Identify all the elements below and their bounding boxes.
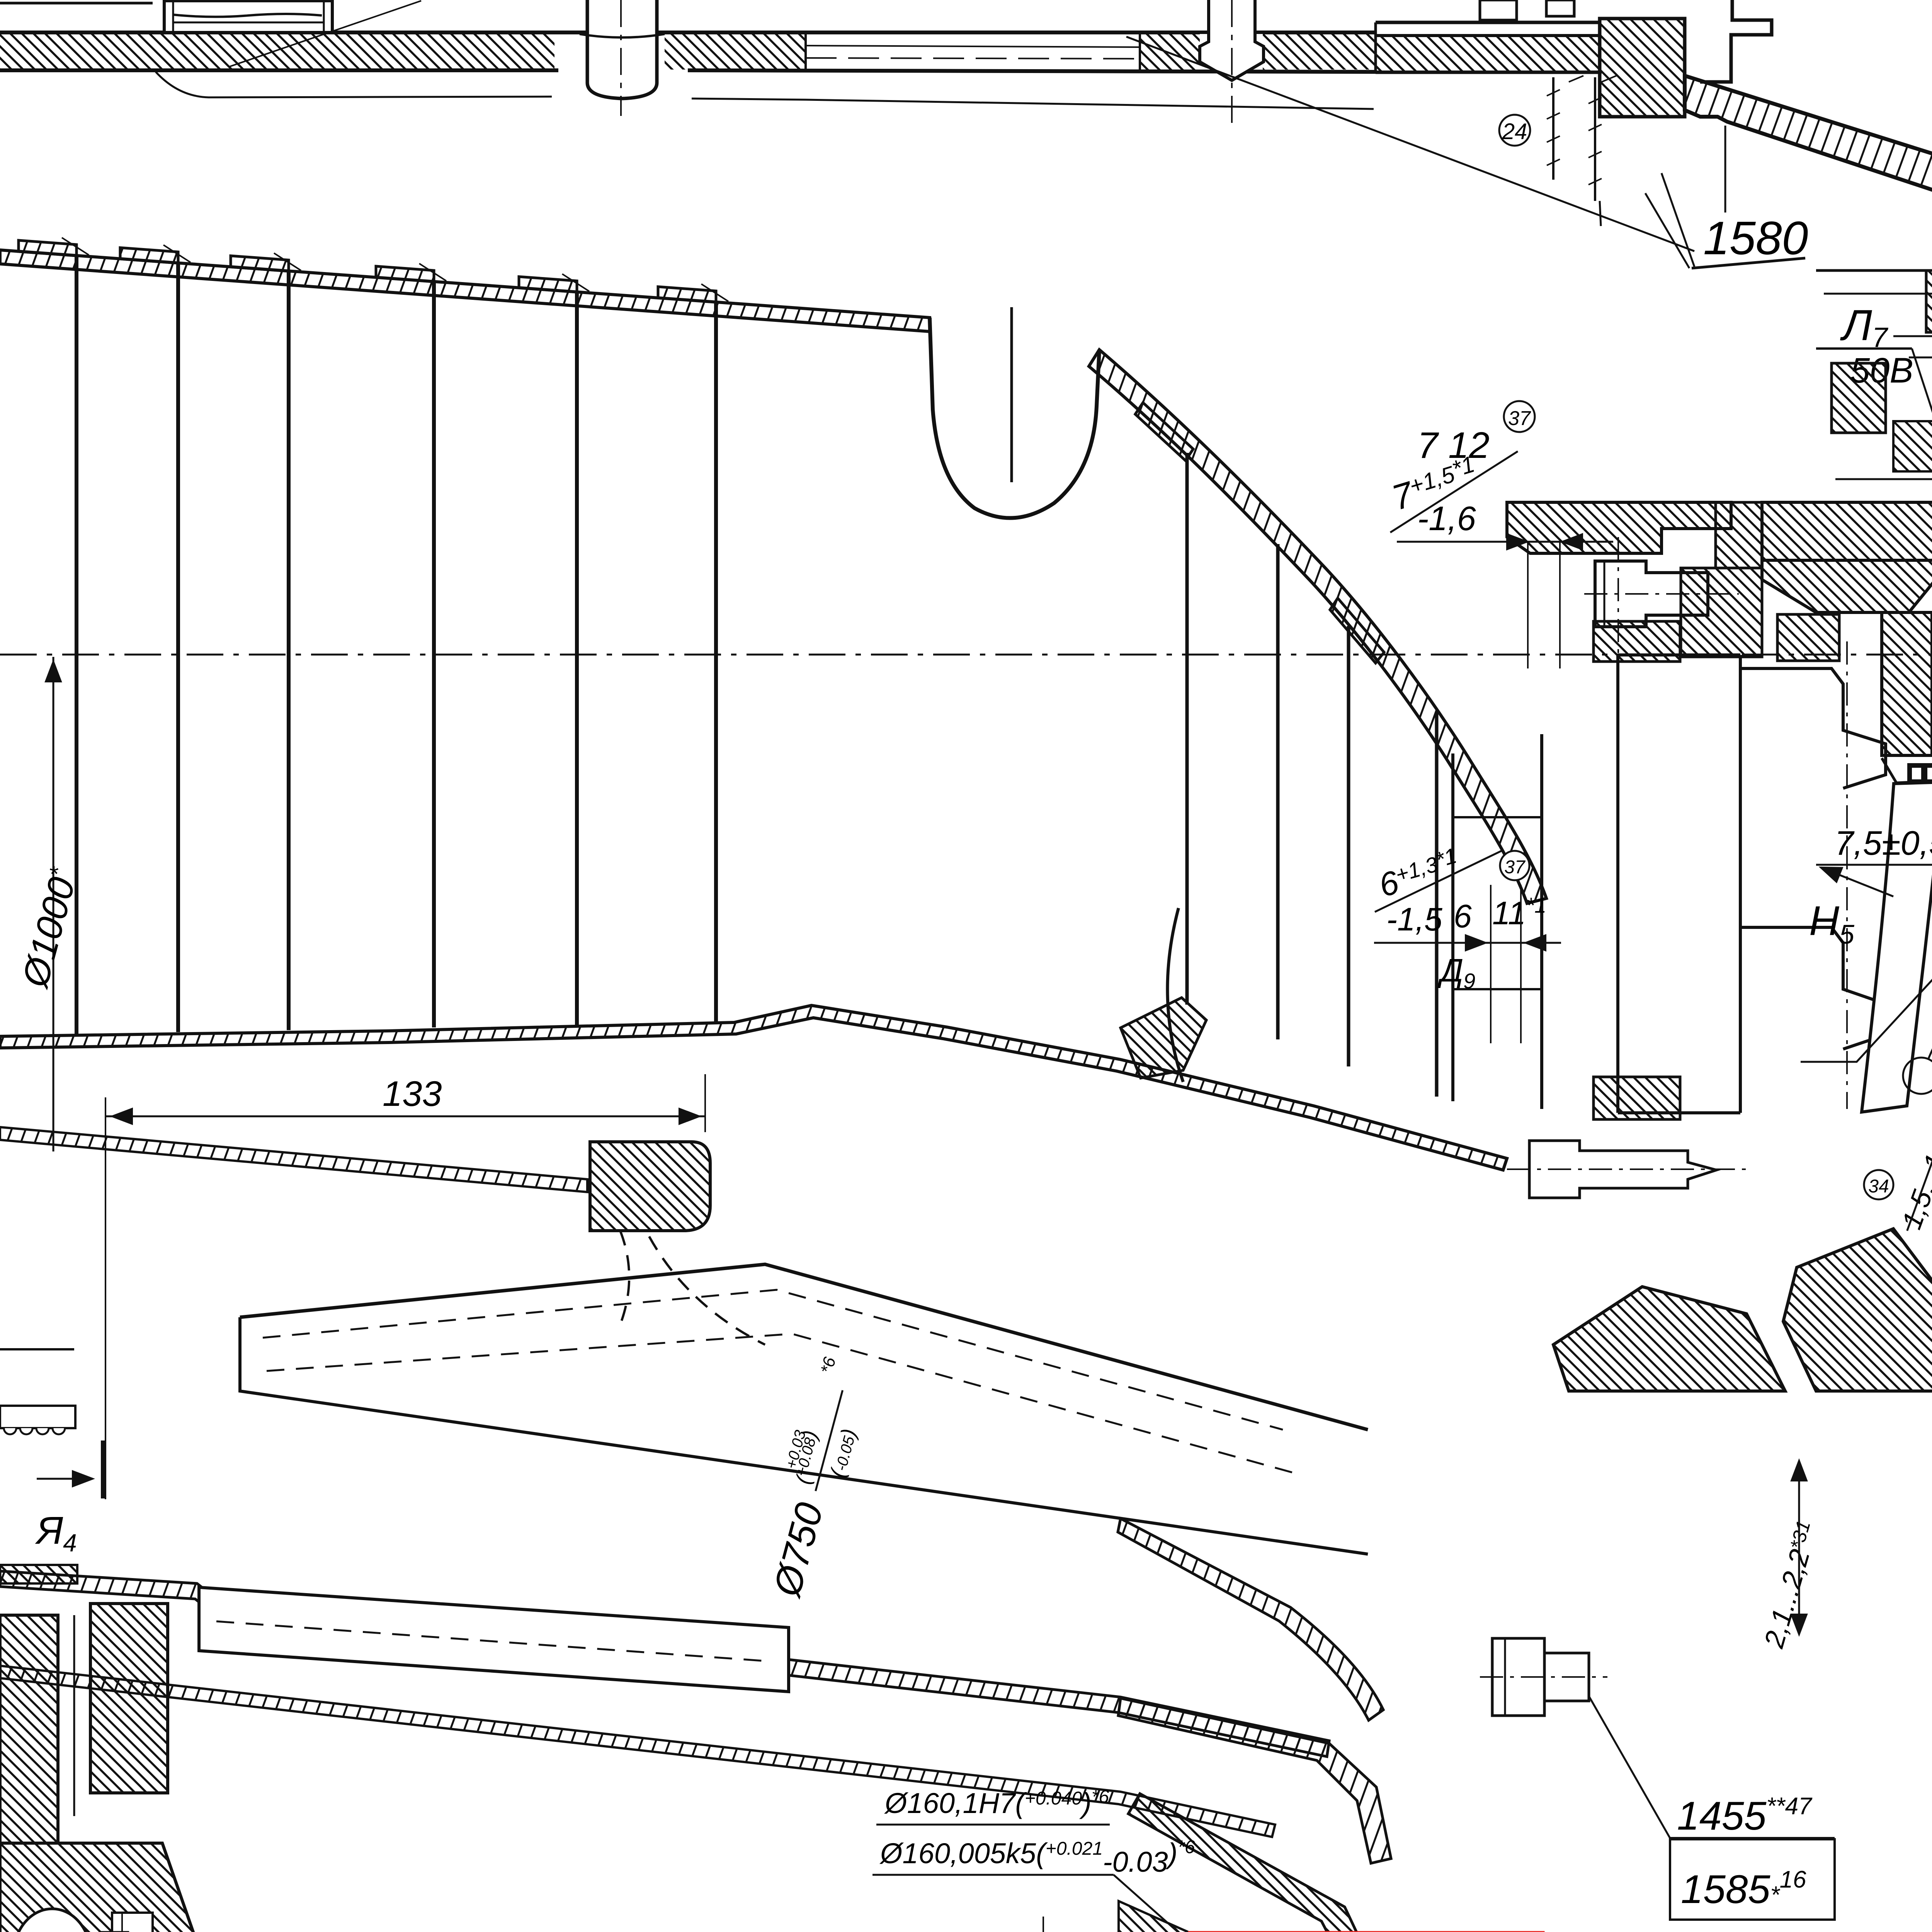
svg-text:34: 34 xyxy=(1868,1176,1889,1197)
svg-text:1580: 1580 xyxy=(1703,212,1808,264)
svg-text:133: 133 xyxy=(383,1074,442,1114)
svg-text:37: 37 xyxy=(1504,857,1526,878)
svg-text:7,5±0,5: 7,5±0,5 xyxy=(1835,824,1932,862)
svg-text:-1,5: -1,5 xyxy=(1386,901,1442,937)
svg-text:6: 6 xyxy=(1454,898,1472,934)
svg-text:24: 24 xyxy=(1502,119,1527,144)
svg-text:-1,6: -1,6 xyxy=(1417,499,1476,537)
svg-text:37: 37 xyxy=(1508,407,1531,430)
